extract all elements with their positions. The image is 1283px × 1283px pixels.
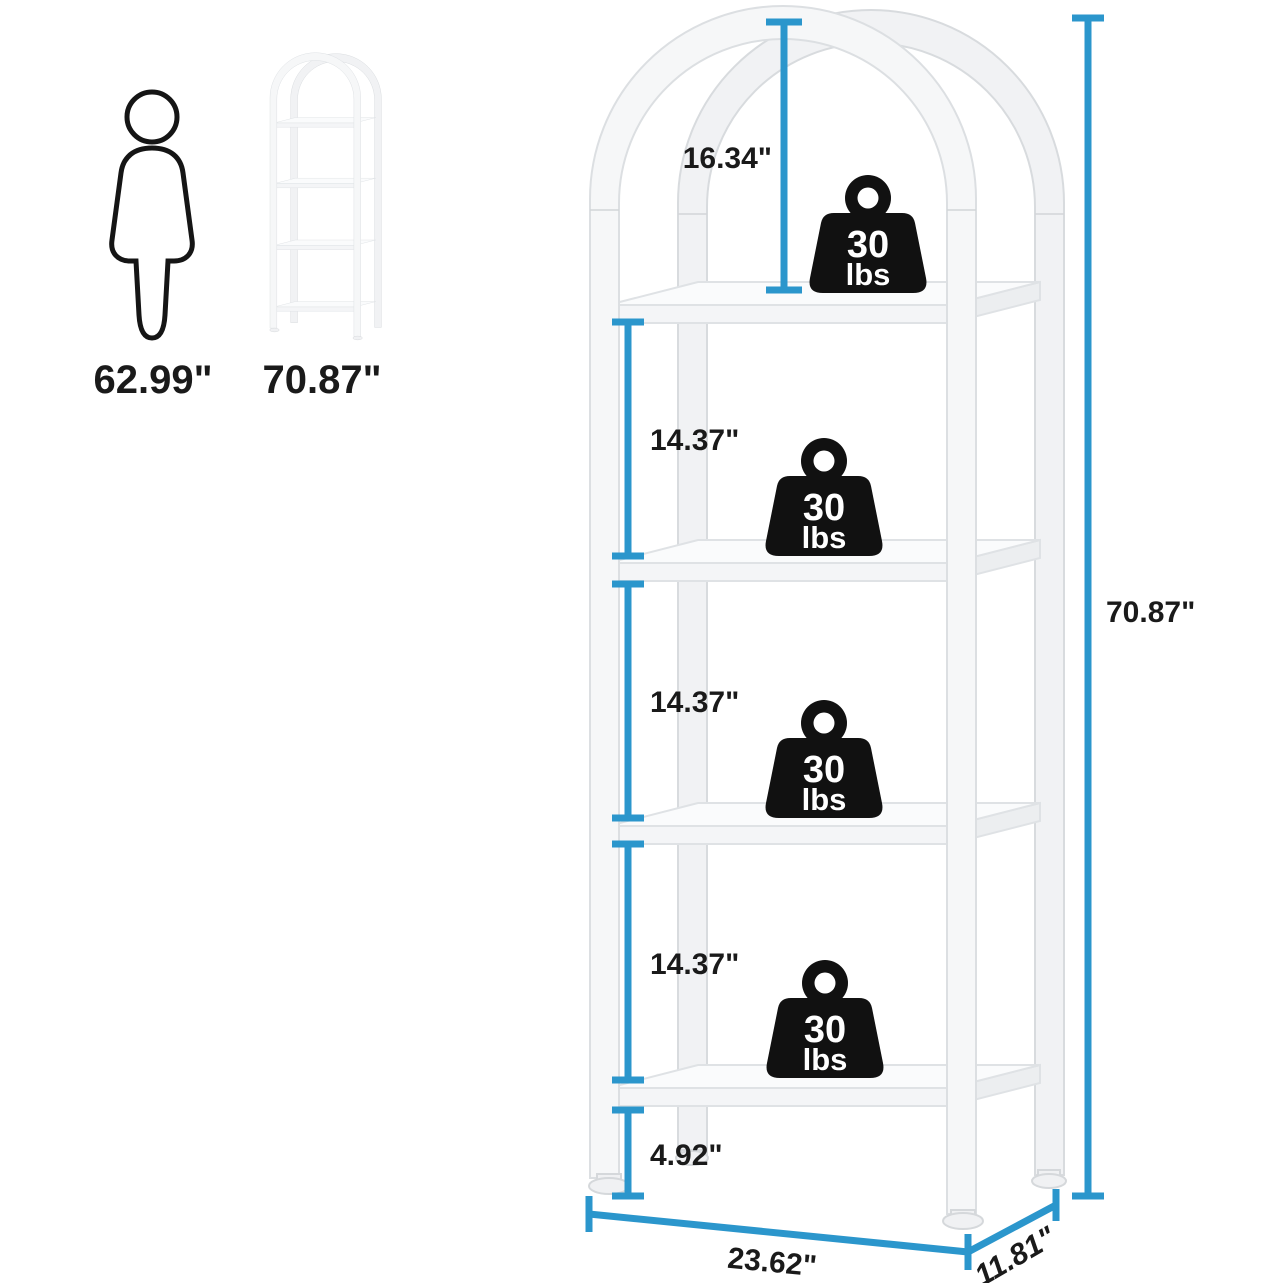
- front-right-foot-pad: [943, 1213, 983, 1229]
- weight-icon-shelf-1: 30 lbs: [810, 175, 927, 293]
- back-right-foot-pad: [1032, 1174, 1066, 1188]
- dimension-label-shelf-gap-1: 14.37": [650, 424, 739, 457]
- person-icon: [112, 92, 193, 338]
- dimension-shelf-gap-2: 14.37": [612, 584, 739, 818]
- weight-unit: lbs: [802, 782, 847, 817]
- dimension-label-width: 23.62": [726, 1242, 818, 1283]
- front-left-foot-pad: [589, 1178, 629, 1194]
- weight-unit: lbs: [846, 257, 891, 292]
- dimension-label-shelf-gap-2: 14.37": [650, 686, 739, 719]
- dimension-shelf-gap-1: 14.37": [612, 322, 739, 556]
- dimension-total-height: 70.87": [1072, 18, 1195, 1196]
- person-body: [112, 148, 193, 338]
- diagram-svg: 62.99" 70.87": [0, 0, 1283, 1283]
- product-dimension-diagram: 62.99" 70.87": [0, 0, 1283, 1283]
- weight-unit: lbs: [803, 1042, 848, 1077]
- dimension-label-bottom-clearance: 4.92": [650, 1139, 723, 1172]
- weight-icon-shelf-3: 30 lbs: [766, 700, 883, 818]
- weight-icon-shelf-2: 30 lbs: [766, 438, 883, 556]
- weight-unit: lbs: [802, 520, 847, 555]
- person-head: [127, 92, 177, 142]
- dimension-width: 23.62": [589, 1196, 968, 1283]
- thumbnail-height-label: 70.87": [262, 358, 381, 402]
- reference-shelf-thumbnail: [270, 53, 382, 340]
- dimension-depth: 11.81": [968, 1189, 1062, 1283]
- dimension-label-total-height: 70.87": [1106, 596, 1195, 629]
- dimension-label-top-section: 16.34": [683, 142, 772, 175]
- dimension-label-shelf-gap-3: 14.37": [650, 948, 739, 981]
- dimension-shelf-gap-3: 14.37": [612, 844, 739, 1080]
- person-height-label: 62.99": [93, 358, 212, 402]
- weight-icon-shelf-4: 30 lbs: [767, 960, 884, 1078]
